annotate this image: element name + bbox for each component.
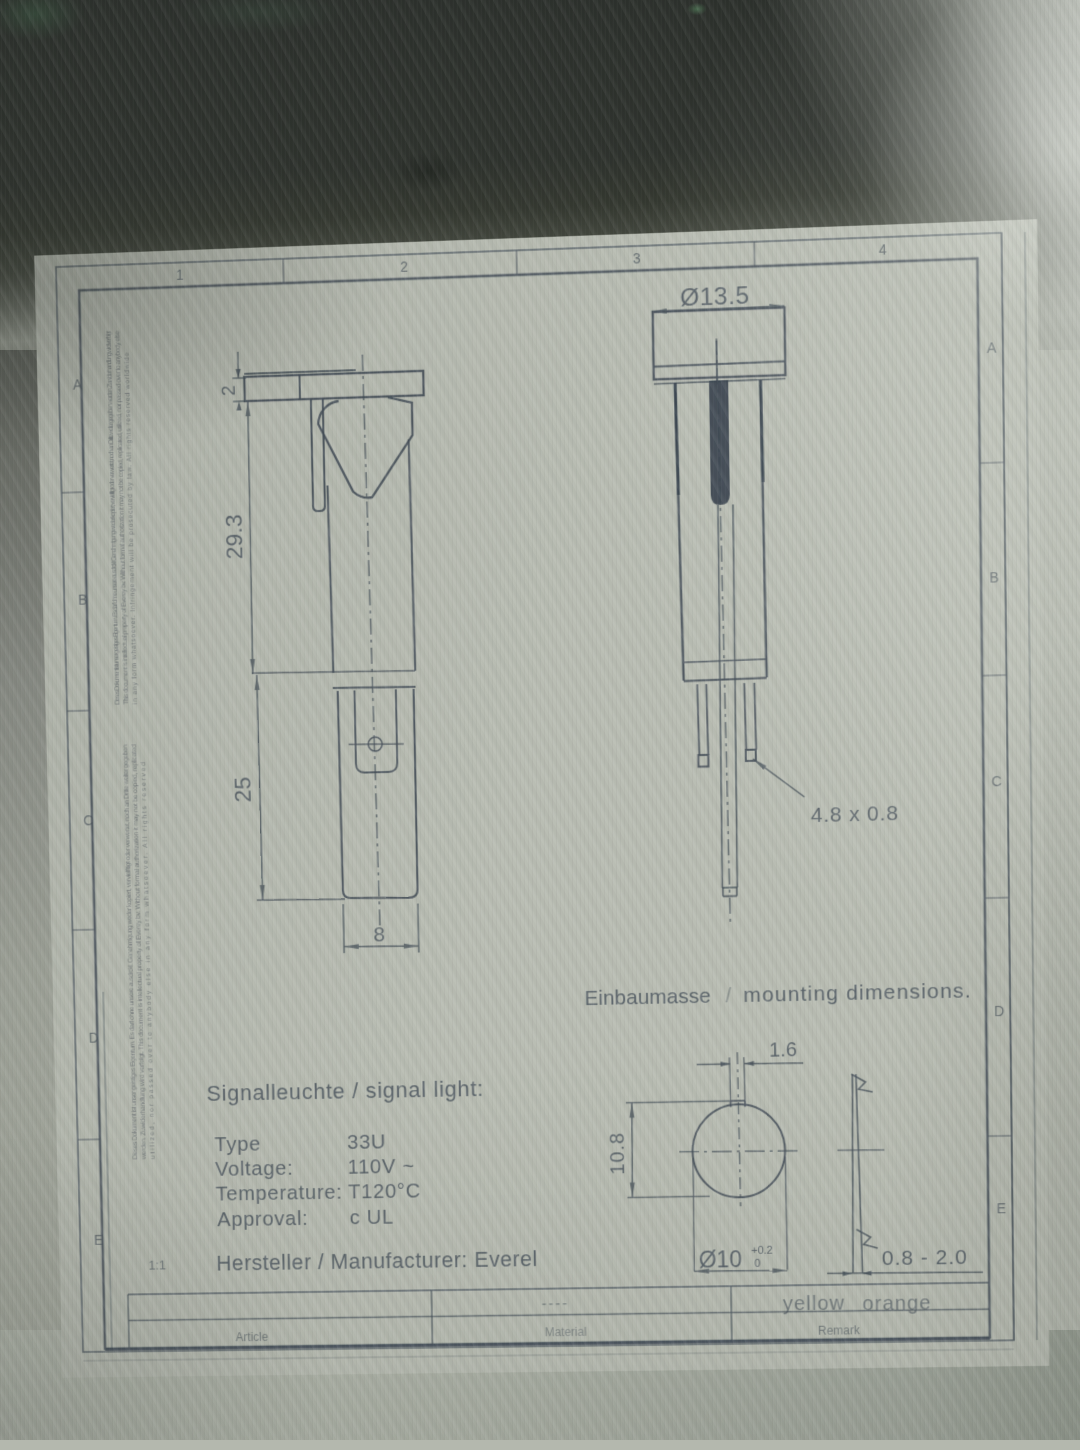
svg-text:E: E <box>997 1200 1007 1216</box>
svg-text:Ø10: Ø10 <box>699 1246 742 1273</box>
svg-text:C: C <box>991 773 1001 790</box>
svg-text:Type: Type <box>214 1133 261 1157</box>
svg-text:yellow: yellow <box>783 1293 846 1316</box>
svg-text:10.8: 10.8 <box>607 1132 629 1175</box>
svg-text:Remark: Remark <box>818 1323 861 1338</box>
svg-text:3: 3 <box>633 250 641 267</box>
svg-text:C: C <box>83 812 93 828</box>
svg-text:Approval:: Approval: <box>217 1207 309 1231</box>
svg-text:E: E <box>94 1232 103 1248</box>
svg-text:T120°C: T120°C <box>348 1179 421 1203</box>
svg-text:4: 4 <box>879 241 887 258</box>
svg-text:Hersteller / Manufacturer:: Hersteller / Manufacturer: Everel <box>216 1247 538 1275</box>
svg-text:/: / <box>725 984 731 1007</box>
svg-text:1: 1 <box>176 266 184 283</box>
svg-text:B: B <box>989 569 999 586</box>
svg-text:Voltage:: Voltage: <box>215 1157 294 1181</box>
svg-text:0.8 - 2.0: 0.8 - 2.0 <box>882 1246 968 1270</box>
svg-text:29.3: 29.3 <box>221 514 248 560</box>
svg-text:orange: orange <box>862 1292 932 1315</box>
svg-text:8: 8 <box>373 923 385 946</box>
svg-text:Material: Material <box>545 1325 587 1339</box>
svg-text:2: 2 <box>400 258 408 275</box>
svg-text:4.8 x 0.8: 4.8 x 0.8 <box>811 802 899 827</box>
svg-text:Einbaumasse: Einbaumasse <box>584 985 711 1011</box>
svg-text:110V ~: 110V ~ <box>347 1155 415 1179</box>
svg-text:c UL: c UL <box>349 1206 394 1229</box>
svg-text:Article: Article <box>236 1330 269 1344</box>
svg-text:A: A <box>73 376 83 392</box>
svg-text:Temperature:: Temperature: <box>215 1181 342 1206</box>
svg-text:B: B <box>78 591 87 607</box>
svg-text:----: ---- <box>541 1295 569 1312</box>
svg-text:1.6: 1.6 <box>769 1039 797 1062</box>
svg-text:+0.2: +0.2 <box>751 1245 773 1257</box>
svg-text:D: D <box>88 1030 98 1046</box>
svg-text:33U: 33U <box>347 1130 387 1153</box>
svg-text:mounting dimensions.: mounting dimensions. <box>743 979 972 1007</box>
svg-text:25: 25 <box>230 776 256 802</box>
svg-text:0: 0 <box>754 1258 760 1270</box>
svg-text:2: 2 <box>219 385 240 396</box>
svg-text:D: D <box>994 1003 1004 1019</box>
svg-text:1:1: 1:1 <box>148 1258 166 1273</box>
svg-text:A: A <box>987 339 997 356</box>
svg-text:Signalleuchte / signal light: Signalleuchte / signal light: <box>206 1076 484 1106</box>
